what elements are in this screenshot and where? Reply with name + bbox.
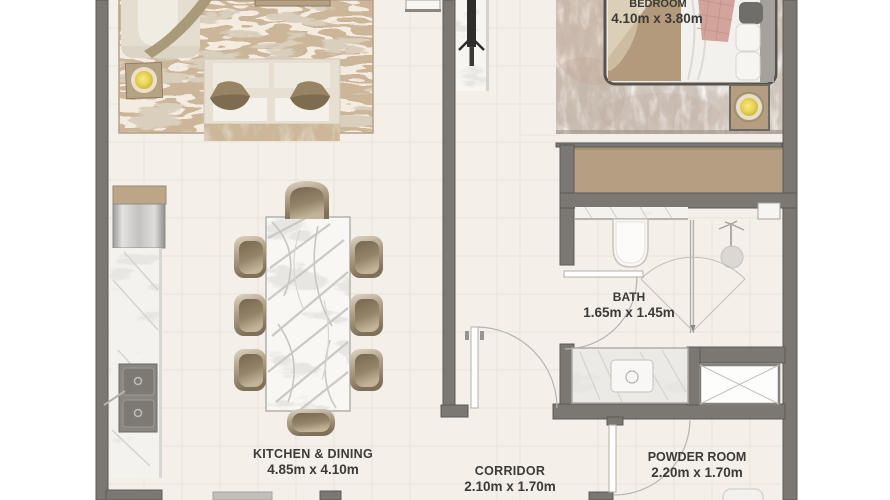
svg-text:BATH: BATH: [613, 290, 645, 304]
svg-text:2.20m x 1.70m: 2.20m x 1.70m: [651, 465, 743, 480]
svg-text:2.10m x 1.70m: 2.10m x 1.70m: [464, 479, 556, 494]
svg-text:4.85m x 4.10m: 4.85m x 4.10m: [267, 462, 359, 477]
svg-text:4.10m x 3.80m: 4.10m x 3.80m: [611, 11, 703, 26]
svg-text:1.65m x 1.45m: 1.65m x 1.45m: [583, 305, 675, 320]
svg-text:POWDER ROOM: POWDER ROOM: [648, 450, 747, 464]
svg-text:BEDROOM: BEDROOM: [629, 0, 686, 10]
svg-text:KITCHEN & DINING: KITCHEN & DINING: [253, 447, 373, 461]
svg-text:CORRIDOR: CORRIDOR: [475, 464, 545, 478]
